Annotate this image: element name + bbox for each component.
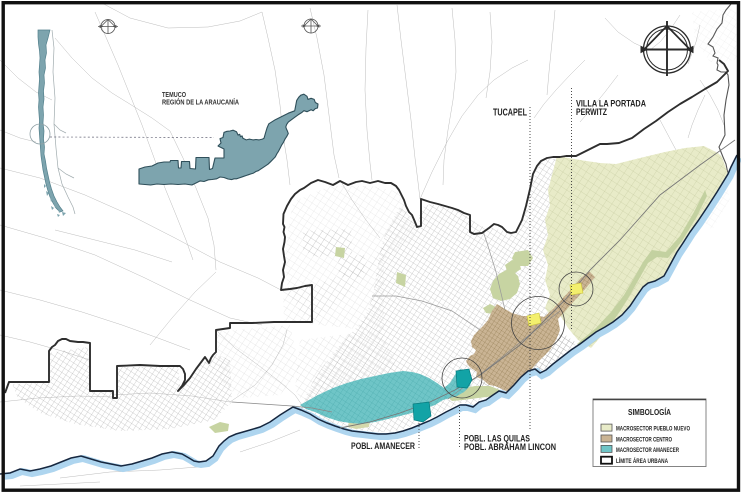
svg-text:POBL. AMANECER: POBL. AMANECER: [351, 441, 415, 452]
svg-text:REGIÓN DE LA ARAUCANÍA: REGIÓN DE LA ARAUCANÍA: [162, 98, 239, 107]
svg-text:MACROSECTOR CENTRO: MACROSECTOR CENTRO: [616, 437, 672, 444]
svg-text:TUCAPEL: TUCAPEL: [493, 108, 527, 119]
svg-text:MACROSECTOR PUEBLO NUEVO: MACROSECTOR PUEBLO NUEVO: [616, 426, 690, 433]
svg-text:MACROSECTOR AMANECER: MACROSECTOR AMANECER: [616, 447, 679, 454]
svg-text:LÍMITE ÁREA URBANA: LÍMITE ÁREA URBANA: [616, 456, 668, 465]
svg-text:SIMBOLOGÍA: SIMBOLOGÍA: [628, 407, 671, 417]
svg-text:POBL. ABRAHAM LINCON: POBL. ABRAHAM LINCON: [464, 442, 556, 453]
svg-text:PERWITZ: PERWITZ: [576, 107, 607, 118]
